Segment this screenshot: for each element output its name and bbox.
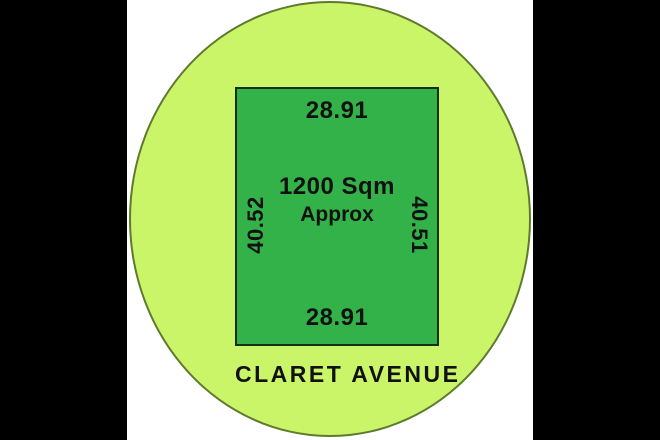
letterbox-left-bar bbox=[0, 0, 127, 440]
letterbox-right-bar bbox=[533, 0, 660, 440]
dimension-bottom: 28.91 bbox=[237, 304, 437, 332]
dimension-top: 28.91 bbox=[237, 97, 437, 125]
lot-area-approx: Approx bbox=[237, 203, 437, 227]
lot-area-label: 1200 Sqm Approx bbox=[237, 173, 437, 227]
plan-panel: 28.91 28.91 40.52 40.51 1200 Sqm Approx … bbox=[127, 0, 533, 440]
lot-rectangle: 28.91 28.91 40.52 40.51 1200 Sqm Approx bbox=[235, 87, 439, 346]
lot-area-value: 1200 Sqm bbox=[237, 173, 437, 201]
street-name-label: CLARET AVENUE bbox=[235, 361, 439, 388]
diagram-canvas: 28.91 28.91 40.52 40.51 1200 Sqm Approx … bbox=[0, 0, 660, 440]
